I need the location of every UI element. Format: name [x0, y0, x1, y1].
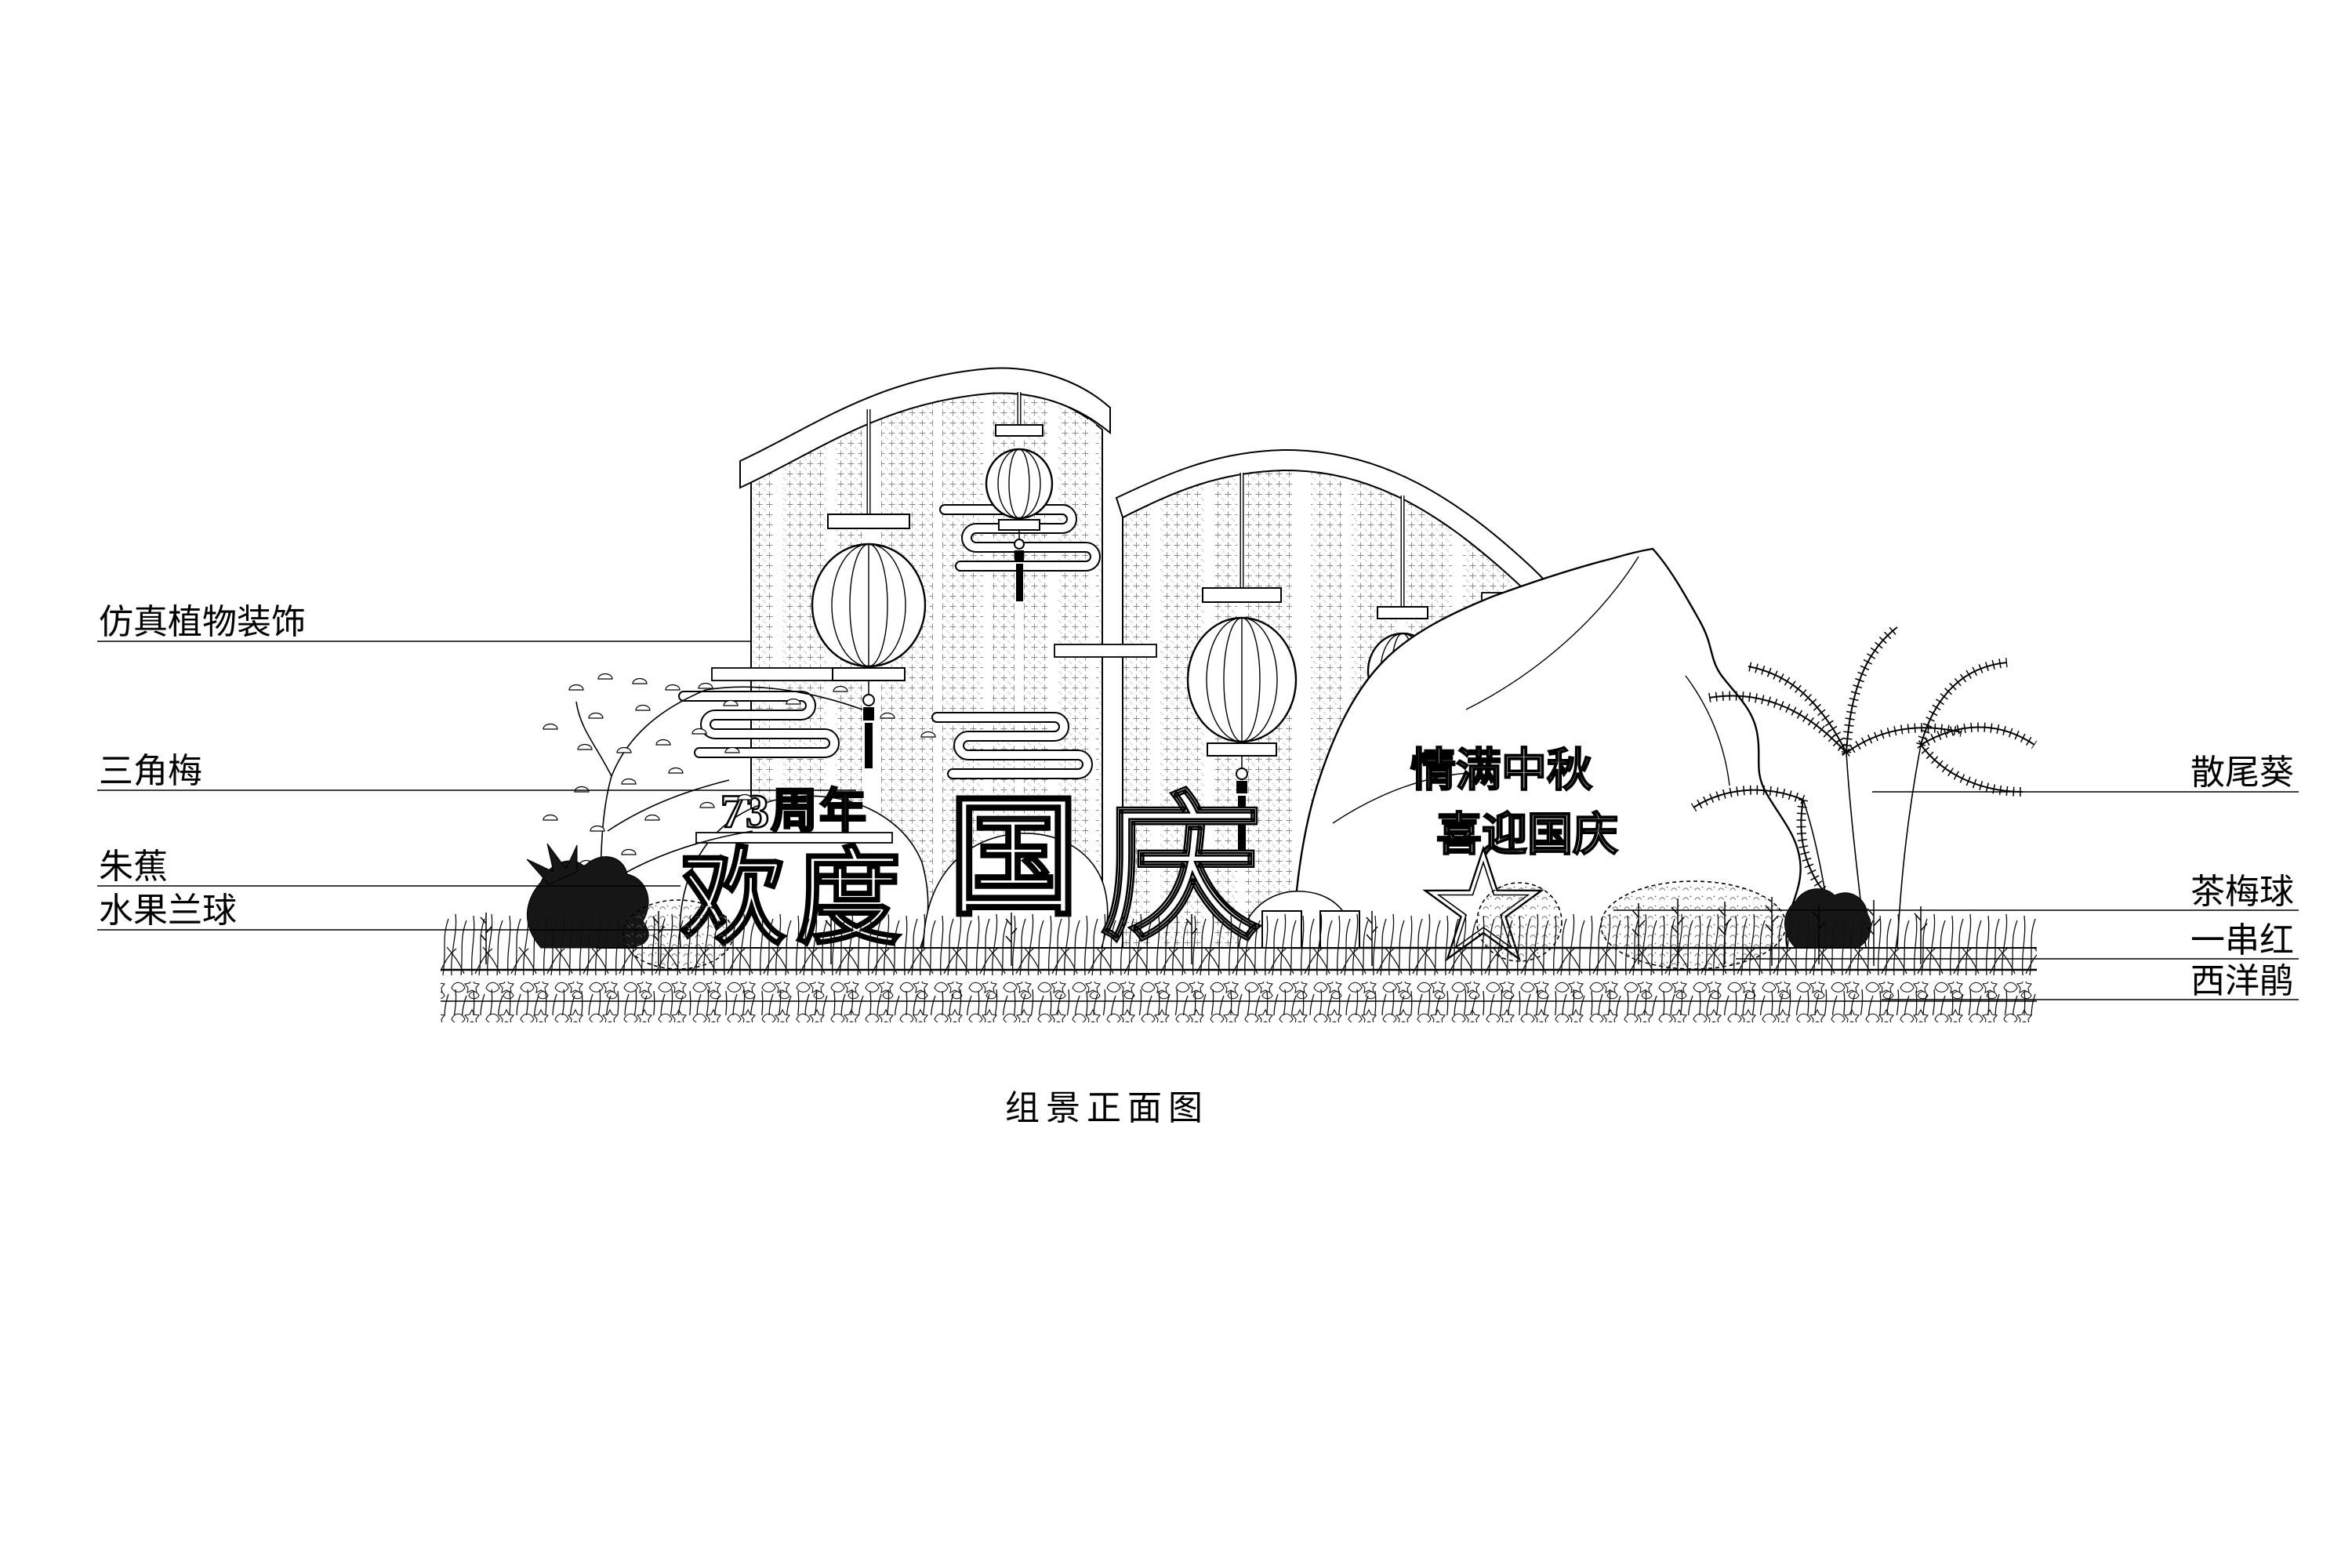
label-bougainvillea: 三角梅	[99, 752, 202, 790]
drawing-caption: 组景正面图	[1005, 1089, 1209, 1127]
sign-anniversary-text: 73周年	[720, 786, 868, 837]
accent-bar	[1054, 644, 1156, 657]
plant-bed	[441, 897, 2037, 1022]
label-artificial-plant-decoration: 仿真植物装饰	[99, 603, 306, 641]
label-salvia: 一串红	[2190, 921, 2294, 960]
rock-text-line2: 喜迎国庆	[1436, 809, 1618, 860]
elevation-drawing: 情满中秋 喜迎国庆 73周年 欢 度 国 庆	[0, 0, 2352, 1568]
drawing-svg: 情满中秋 喜迎国庆 73周年 欢 度 国 庆	[0, 0, 2352, 1568]
label-cordyline: 朱蕉	[99, 848, 168, 886]
label-areca-palm: 散尾葵	[2190, 753, 2294, 792]
label-camellia-ball: 茶梅球	[2190, 873, 2294, 911]
rock-text-line1: 情满中秋	[1410, 745, 1592, 796]
label-fruit-orchid-ball: 水果兰球	[99, 891, 237, 930]
label-azalea: 西洋鹃	[2190, 962, 2294, 1000]
